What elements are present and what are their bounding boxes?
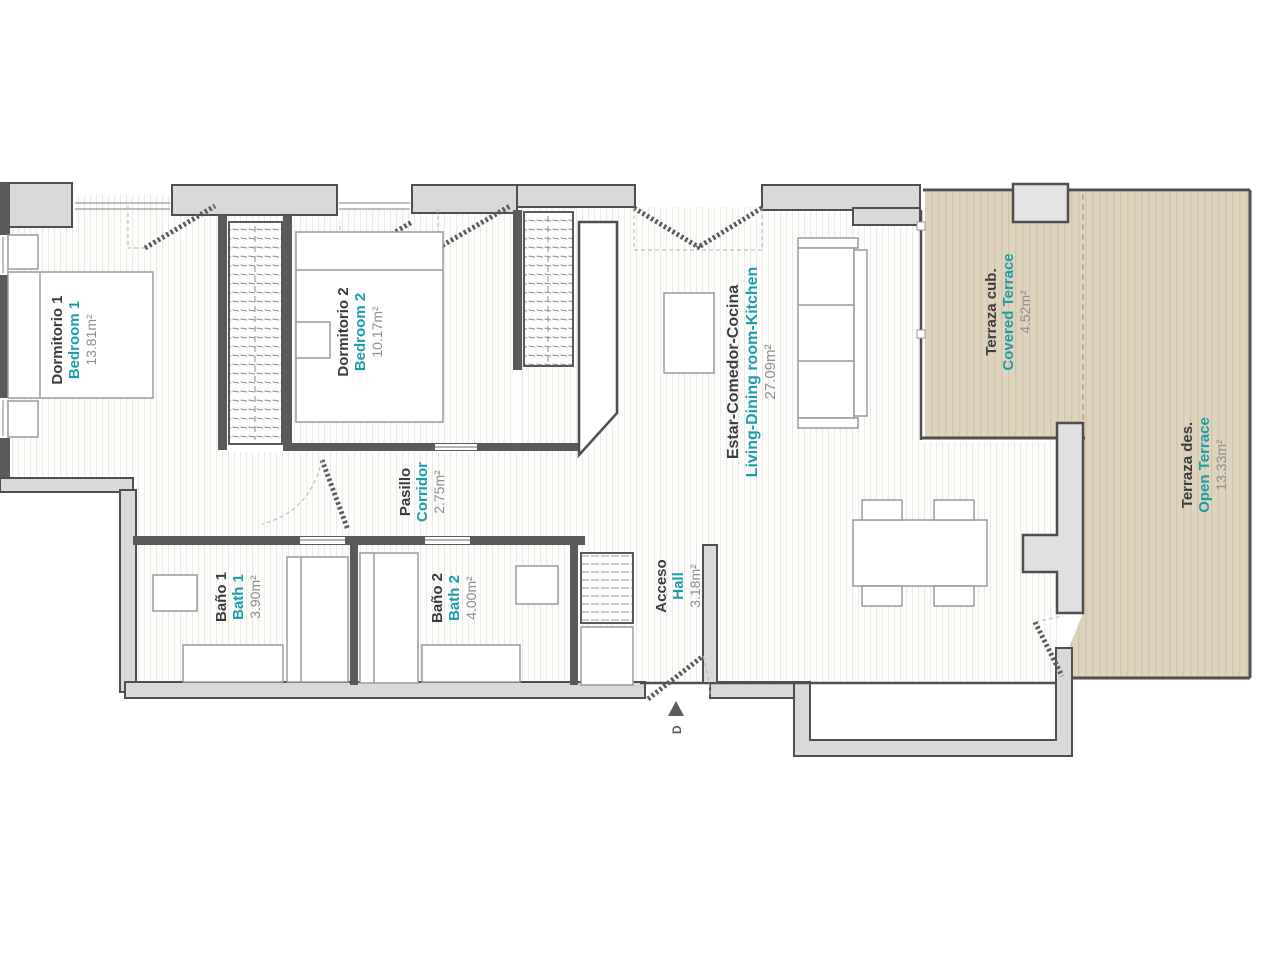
mullion-1 bbox=[917, 222, 925, 230]
dining-chair-1 bbox=[862, 500, 902, 520]
wall-bedroom1-south bbox=[0, 478, 133, 492]
bath1-sink bbox=[153, 575, 197, 611]
sofa-armrest-bottom bbox=[798, 418, 858, 428]
bedroom1-area: 13.81m² bbox=[83, 314, 99, 366]
floor-plan: D Dormitorio 1 Bedroom 1 13.81m² Dormito… bbox=[0, 0, 1280, 960]
label-bath-1: Baño 1 Bath 1 3.90m² bbox=[213, 572, 263, 622]
living-name-en: Living-Dining room-Kitchen bbox=[744, 267, 761, 478]
wall-corridor-north bbox=[288, 443, 580, 451]
mullion-2 bbox=[917, 330, 925, 338]
wall-bottom-2 bbox=[710, 682, 794, 698]
bedroom2-name-es: Dormitorio 2 bbox=[335, 287, 352, 376]
covered-terrace-area: 4.52m² bbox=[1017, 290, 1033, 334]
bath1-toilet bbox=[183, 645, 283, 682]
corridor-name-en: Corridor bbox=[414, 462, 431, 522]
hall-area: 3.18m² bbox=[687, 564, 703, 608]
bath2-name-en: Bath 2 bbox=[446, 575, 463, 621]
nightstand-1b bbox=[8, 401, 38, 437]
bath2-toilet bbox=[422, 645, 520, 682]
bath1-name-es: Baño 1 bbox=[213, 572, 230, 622]
wall-baths-north bbox=[133, 536, 585, 545]
open-terrace-name-es: Terraza des. bbox=[1179, 422, 1196, 508]
bedroom1-name-es: Dormitorio 1 bbox=[49, 295, 66, 384]
label-bath-2: Baño 2 Bath 2 4.00m² bbox=[429, 573, 479, 623]
bedroom2-area: 10.17m² bbox=[369, 306, 385, 358]
bath1-name-en: Bath 1 bbox=[230, 574, 247, 620]
corridor-name-es: Pasillo bbox=[397, 468, 414, 516]
wall-bedroom2-east bbox=[513, 210, 522, 370]
sofa-seat bbox=[798, 248, 854, 418]
bedroom2-name-en: Bedroom 2 bbox=[352, 293, 369, 371]
open-terrace-floor bbox=[1068, 192, 1250, 678]
bath1-shower bbox=[287, 557, 348, 682]
bedroom1-name-en: Bedroom 1 bbox=[66, 301, 83, 379]
bath2-sink bbox=[516, 566, 558, 604]
wall-bedroom2-west bbox=[283, 215, 292, 451]
floor-corridor bbox=[133, 452, 583, 538]
kitchen-island bbox=[664, 293, 714, 373]
shaft-wall bbox=[579, 222, 617, 455]
wall-hall-east bbox=[703, 545, 717, 683]
sofa-backrest bbox=[854, 250, 867, 416]
dining-chair-4 bbox=[934, 586, 974, 606]
wall-west-baths bbox=[120, 490, 136, 692]
hall-cabinet bbox=[581, 627, 633, 685]
dining-table bbox=[853, 520, 987, 586]
wall-top-5-step bbox=[853, 208, 920, 225]
sofa-armrest-top bbox=[798, 238, 858, 248]
open-terrace-area: 13.33m² bbox=[1213, 439, 1229, 491]
wall-bath1-bath2 bbox=[350, 545, 358, 685]
wall-bedroom1-east bbox=[218, 215, 227, 450]
hall-closet bbox=[581, 553, 633, 623]
wall-top-5 bbox=[762, 185, 920, 210]
terrace-pillar bbox=[1013, 184, 1068, 222]
wall-left-1 bbox=[0, 183, 10, 235]
nightstand-2a bbox=[296, 322, 330, 358]
wall-top-3 bbox=[412, 185, 517, 213]
wall-top-1 bbox=[0, 183, 72, 227]
living-name-es: Estar-Comedor-Cocina bbox=[725, 285, 742, 459]
nightstand-1a bbox=[8, 235, 38, 269]
bath1-area: 3.90m² bbox=[247, 575, 263, 619]
open-terrace-name-en: Open Terrace bbox=[1196, 417, 1213, 513]
entrance-arrow-icon bbox=[668, 701, 684, 716]
entrance-marker: D bbox=[668, 701, 684, 734]
dining-chair-3 bbox=[862, 586, 902, 606]
wall-bath2-hall bbox=[570, 545, 578, 685]
hall-name-es: Acceso bbox=[653, 559, 670, 612]
wall-top-4 bbox=[517, 185, 635, 207]
wall-top-2 bbox=[172, 185, 337, 215]
bath2-area: 4.00m² bbox=[463, 576, 479, 620]
covered-terrace-name-en: Covered Terrace bbox=[1000, 253, 1017, 370]
label-corridor: Pasillo Corridor 2.75m² bbox=[397, 462, 447, 522]
dining-chair-2 bbox=[934, 500, 974, 520]
bath2-shower bbox=[360, 553, 418, 683]
bath2-name-es: Baño 2 bbox=[429, 573, 446, 623]
corridor-area: 2.75m² bbox=[431, 470, 447, 514]
wall-bottom-1 bbox=[125, 682, 645, 698]
floor-plan-page: D Dormitorio 1 Bedroom 1 13.81m² Dormito… bbox=[0, 0, 1280, 960]
living-area: 27.09m² bbox=[762, 344, 779, 399]
hall-name-en: Hall bbox=[670, 572, 687, 600]
covered-terrace-name-es: Terraza cub. bbox=[983, 268, 1000, 355]
entrance-letter: D bbox=[670, 725, 684, 734]
